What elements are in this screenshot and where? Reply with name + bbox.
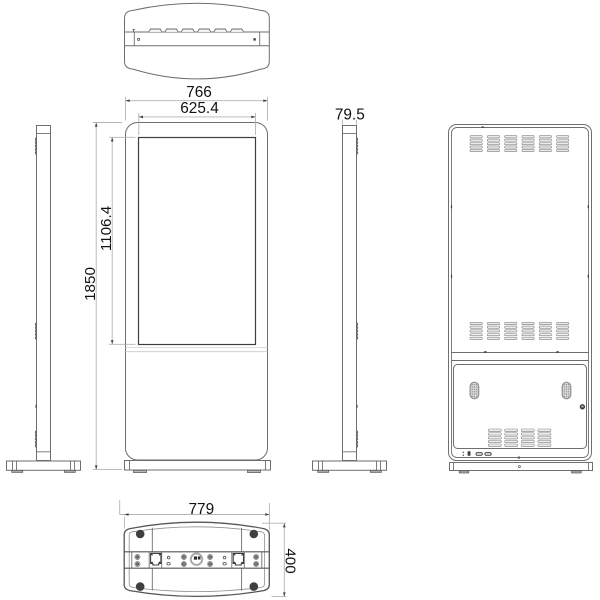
svg-text:779: 779 <box>188 501 214 518</box>
svg-text:766: 766 <box>186 84 212 101</box>
svg-text:625.4: 625.4 <box>180 100 219 117</box>
svg-text:1106.4: 1106.4 <box>98 206 115 251</box>
svg-text:1850: 1850 <box>82 267 99 301</box>
svg-text:79.5: 79.5 <box>335 106 365 123</box>
svg-text:400: 400 <box>282 548 299 573</box>
